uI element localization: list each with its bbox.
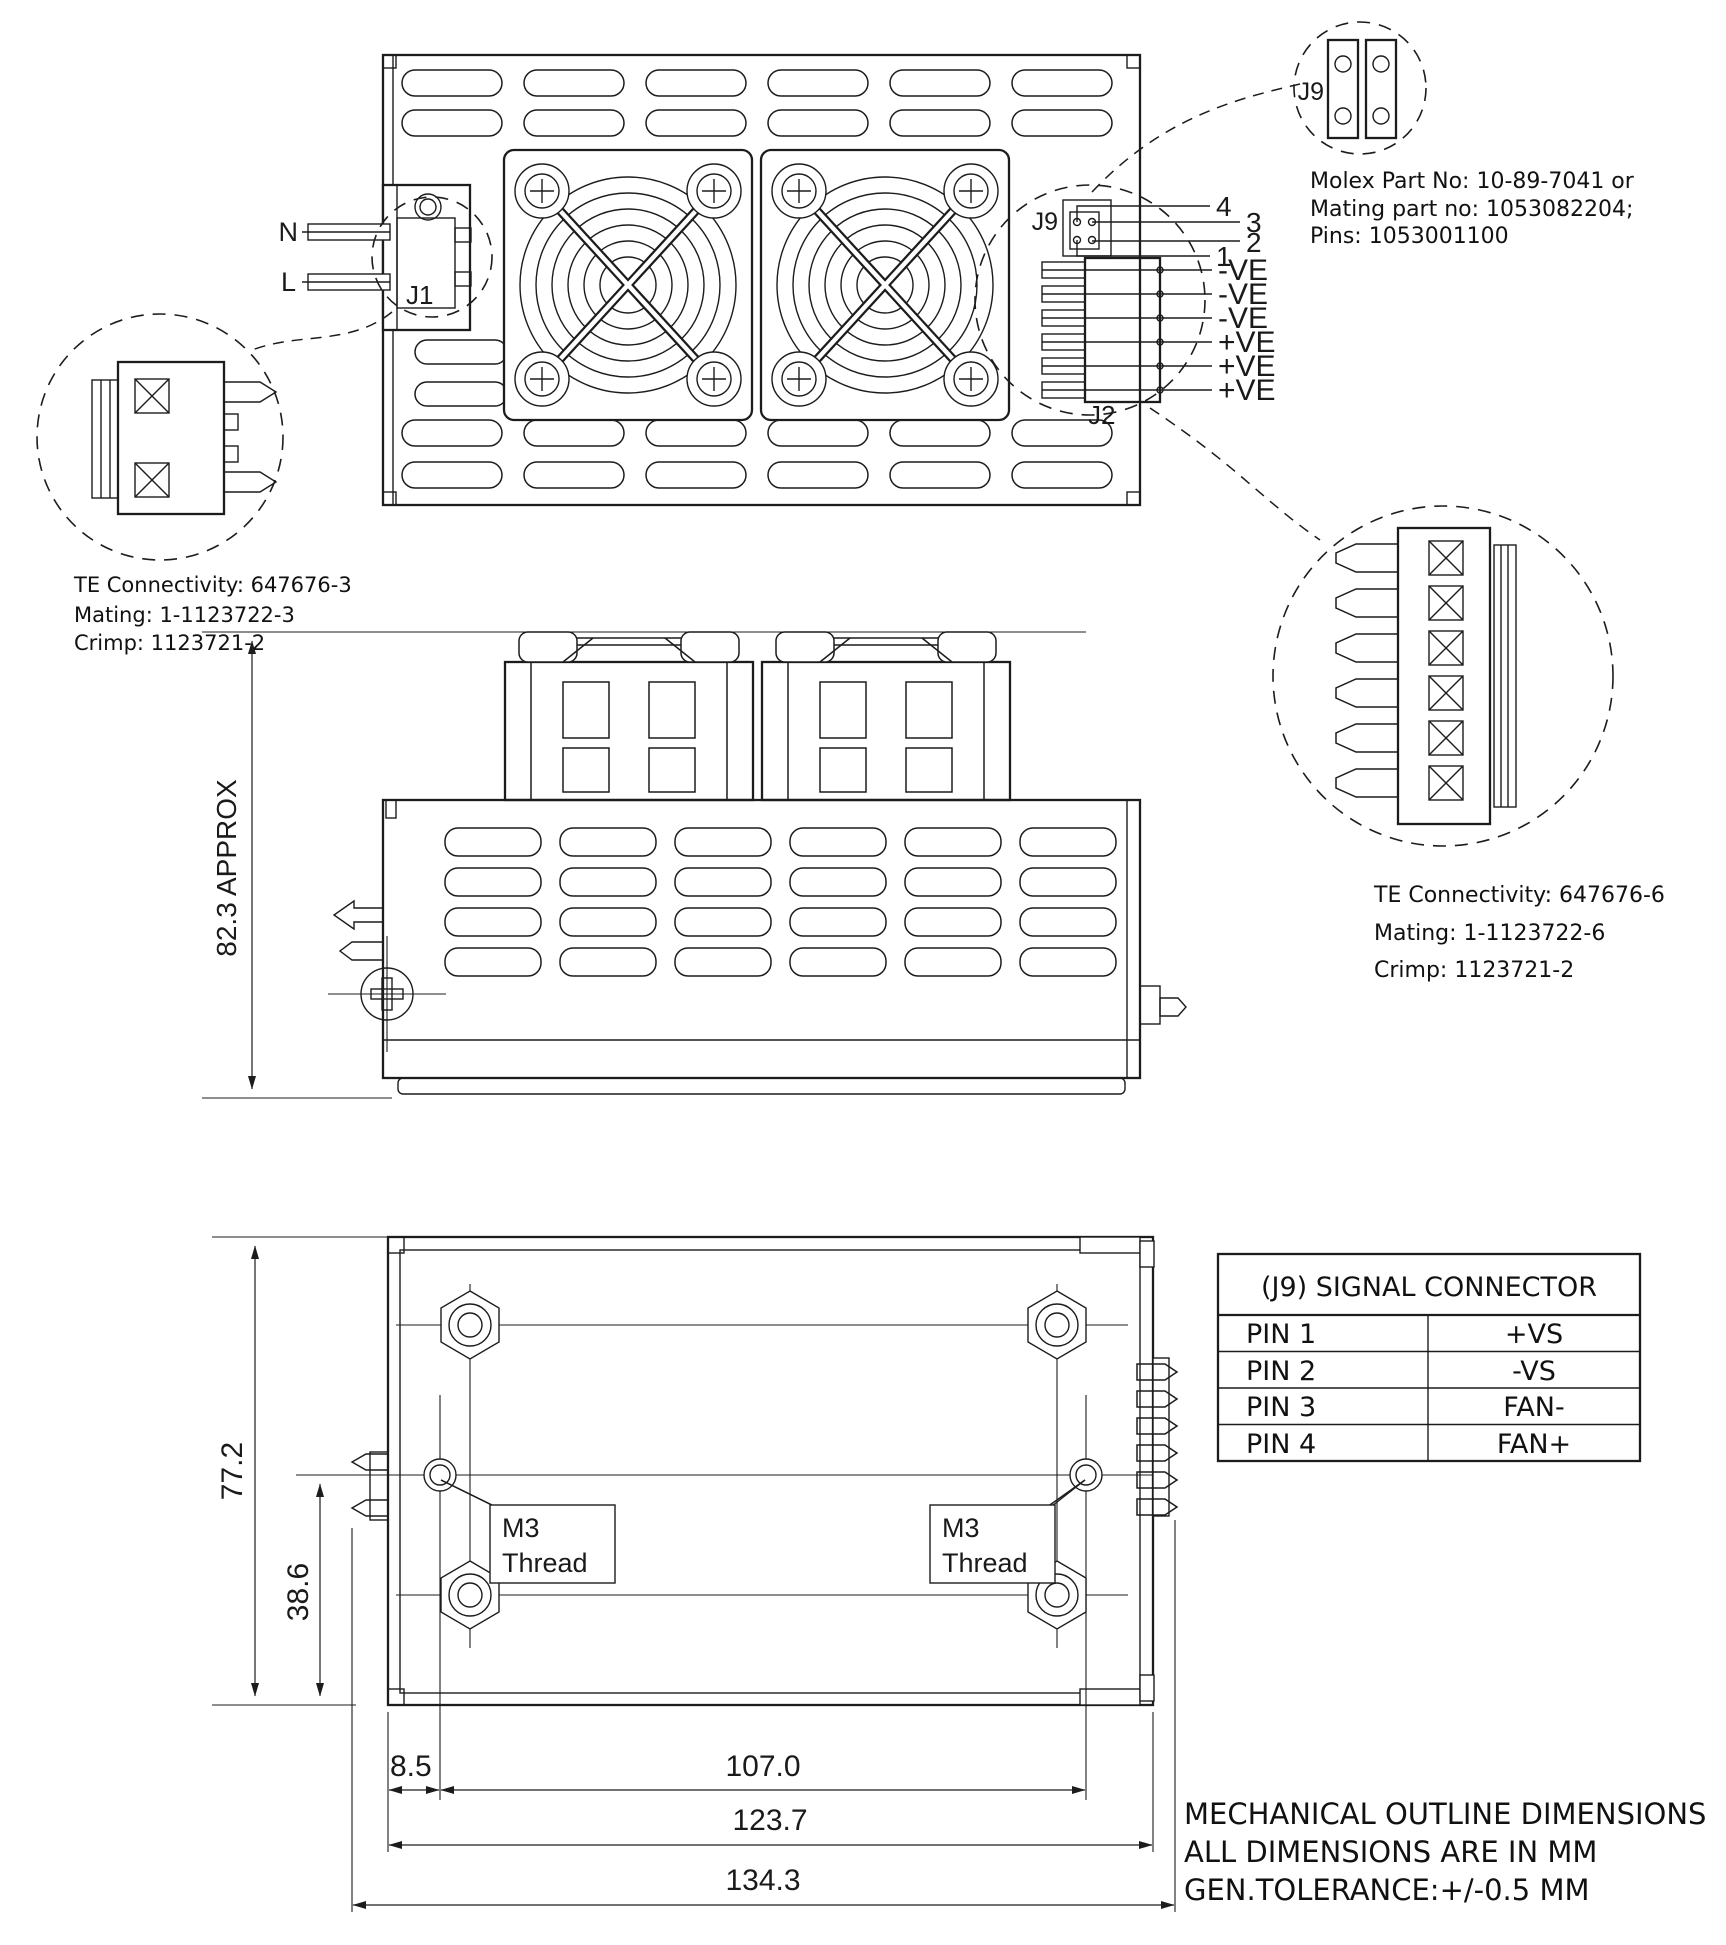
mechanical-drawing: N L J1 J9 4 3 2 1 xyxy=(0,0,1726,1945)
j1-detail-callout: TE Connectivity: 647676-3 Mating: 1-1123… xyxy=(37,314,352,655)
m3-left-line1: M3 xyxy=(502,1513,540,1543)
dim-8-5: 8.5 xyxy=(390,1750,432,1783)
neutral-label: N xyxy=(279,217,299,247)
signal-connector-table: (J9) SIGNAL CONNECTOR PIN 1 +VS PIN 2 -V… xyxy=(1218,1254,1640,1461)
top-view: N L J1 J9 4 3 2 1 xyxy=(252,55,1320,540)
drawing-sheet: N L J1 J9 4 3 2 1 xyxy=(0,0,1726,1945)
m3-right-line2: Thread xyxy=(942,1548,1028,1578)
fan-left xyxy=(504,150,752,420)
m3-right-line1: M3 xyxy=(942,1513,980,1543)
j9-callout-leader xyxy=(1092,84,1300,192)
dim-77-2: 77.2 xyxy=(216,1442,249,1500)
te6-note-2: Mating: 1-1123722-6 xyxy=(1374,921,1605,946)
note-2: ALL DIMENSIONS ARE IN MM xyxy=(1184,1835,1597,1869)
j1-bottom-silhouette xyxy=(352,1452,388,1520)
te3-note-1: TE Connectivity: 647676-3 xyxy=(73,573,352,597)
dim-134-3: 134.3 xyxy=(725,1864,800,1897)
line-label: L xyxy=(281,267,296,297)
table-pin-1: PIN 1 xyxy=(1246,1319,1316,1350)
j9-detail-label: J9 xyxy=(1298,78,1324,106)
table-sig-3: FAN- xyxy=(1503,1392,1564,1423)
note-3: GEN.TOLERANCE:+/-0.5 MM xyxy=(1184,1873,1590,1907)
j2-callout-leader xyxy=(1150,408,1320,540)
drawing-notes: MECHANICAL OUTLINE DIMENSIONS ALL DIMENS… xyxy=(1184,1797,1706,1907)
dim-38-6: 38.6 xyxy=(282,1563,315,1621)
j1-label: J1 xyxy=(406,280,433,310)
te3-note-2: Mating: 1-1123722-3 xyxy=(74,603,295,627)
dim-123-7: 123.7 xyxy=(732,1804,807,1837)
molex-note-1: Molex Part No: 10-89-7041 or xyxy=(1310,169,1635,194)
standoff-top-right xyxy=(1028,1291,1086,1359)
output-connector-detail-callout: TE Connectivity: 647676-6 Mating: 1-1123… xyxy=(1273,506,1665,983)
j9-label: J9 xyxy=(1032,208,1058,236)
side-pin-arrow xyxy=(334,901,383,929)
m3-hole-right xyxy=(1070,1459,1102,1491)
side-pin-bullet xyxy=(340,942,383,960)
te6-note-3: Crimp: 1123721-2 xyxy=(1374,958,1574,983)
table-pin-3: PIN 3 xyxy=(1246,1392,1316,1423)
fan-left-front xyxy=(505,632,753,800)
m3-left-line2: Thread xyxy=(502,1548,588,1578)
chassis-screw xyxy=(328,936,446,1052)
dim-82-3: 82.3 APPROX xyxy=(211,779,242,957)
te6-note-1: TE Connectivity: 647676-6 xyxy=(1373,883,1665,908)
fan-right xyxy=(761,150,1009,420)
table-sig-4: FAN+ xyxy=(1497,1429,1571,1460)
right-tab xyxy=(1140,986,1160,1024)
front-vent-slots xyxy=(445,828,1116,976)
note-1: MECHANICAL OUTLINE DIMENSIONS xyxy=(1184,1797,1706,1831)
dim-107-0: 107.0 xyxy=(725,1750,800,1783)
j9-detail-callout: J9 Molex Part No: 10-89-7041 or Mating p… xyxy=(1294,22,1635,249)
table-pin-4: PIN 4 xyxy=(1246,1429,1316,1460)
j1-callout-leader xyxy=(252,312,392,350)
j1-connector: N L J1 xyxy=(279,185,493,330)
j2-bottom-pins xyxy=(1137,1358,1177,1516)
molex-note-3: Pins: 1053001100 xyxy=(1310,224,1509,249)
molex-note-2: Mating part no: 1053082204; xyxy=(1310,197,1633,222)
fan-right-front xyxy=(762,632,1010,800)
bottom-view: M3 Thread M3 Thread 77.2 38.6 8.5 107.0 xyxy=(212,1237,1177,1912)
table-sig-2: -VS xyxy=(1512,1356,1556,1387)
front-view: 82.3 APPROX xyxy=(202,632,1186,1098)
te3-note-3: Crimp: 1123721-2 xyxy=(74,631,265,655)
pin4-label: 4 xyxy=(1216,191,1232,222)
standoff-top-left xyxy=(441,1291,499,1359)
out-pin-6: +VE xyxy=(1218,374,1276,407)
table-sig-1: +VS xyxy=(1505,1319,1563,1350)
right-tab-pin xyxy=(1160,998,1186,1016)
m3-hole-left xyxy=(424,1459,456,1491)
table-title: (J9) SIGNAL CONNECTOR xyxy=(1261,1272,1597,1303)
table-pin-2: PIN 2 xyxy=(1246,1356,1316,1387)
